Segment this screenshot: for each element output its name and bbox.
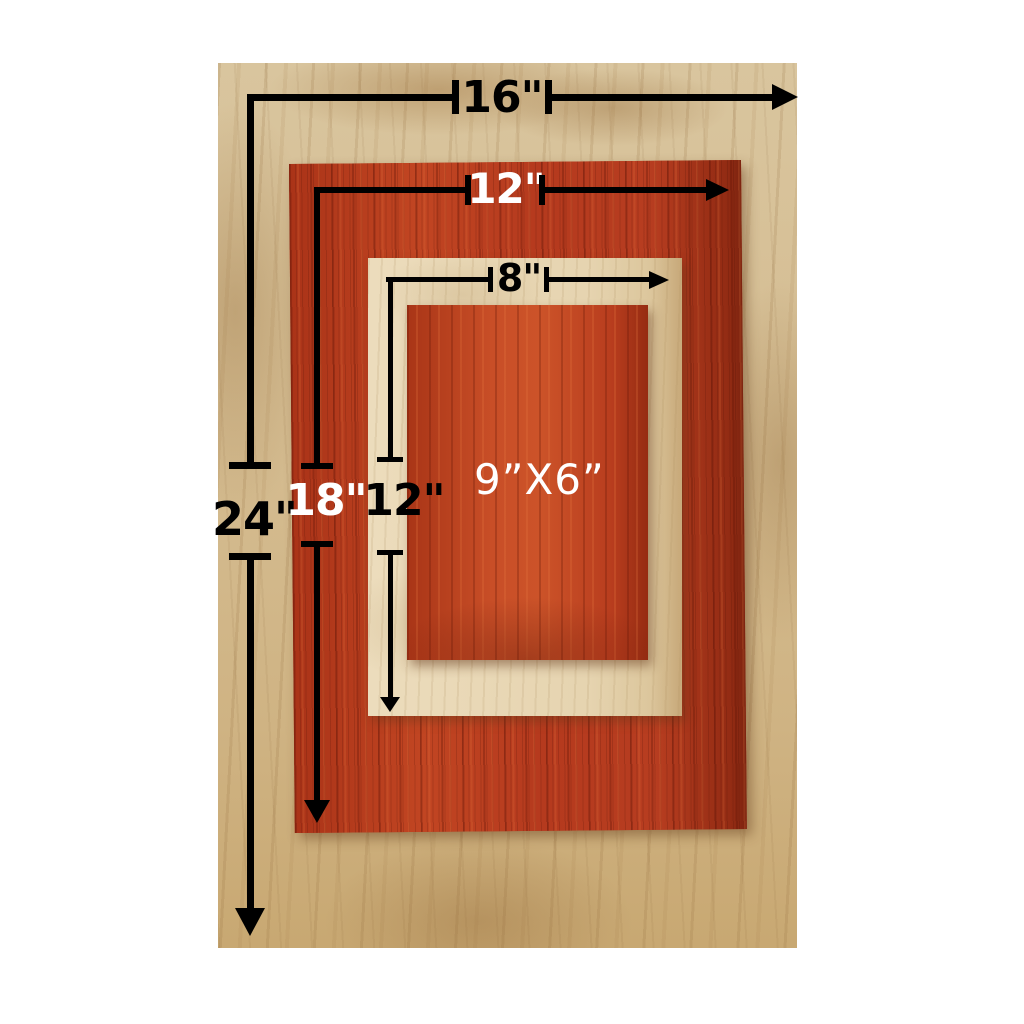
dim-width-8-arrowhead-icon <box>649 271 669 289</box>
dim-width-8-label: 8" <box>490 259 548 297</box>
dim-width-8-line-left <box>386 277 490 282</box>
dim-height-24-line-top <box>247 94 254 466</box>
dim-width-16-label: 16" <box>452 76 552 120</box>
dim-height-24-tick-bottom <box>229 553 271 560</box>
dim-height-18-line-top <box>314 187 320 466</box>
dim-width-16-line-left <box>247 94 453 101</box>
dim-width-16-arrowhead-icon <box>772 84 798 110</box>
dim-height-12-tick-top <box>377 457 403 462</box>
dim-width-12-line-left <box>314 187 468 193</box>
dim-height-24-line-bottom <box>247 560 254 908</box>
dim-width-8-line-right <box>549 277 650 282</box>
dim-height-18-line-bottom <box>314 547 320 800</box>
dim-width-16-line-right <box>552 94 773 101</box>
dim-width-16-tick-right <box>545 80 552 114</box>
dim-height-12-arrowhead-icon <box>380 697 400 712</box>
dim-height-24-tick-top <box>229 462 271 469</box>
dim-height-18-label: 18" <box>284 479 368 523</box>
inner-board-size-label: 9”X6” <box>474 459 605 501</box>
dim-height-12-label: 12" <box>362 479 446 523</box>
product-dimension-image: 16" 24" 12" 18" 8" 12" 9”X6” <box>0 0 1024 1024</box>
dim-width-12-line-right <box>545 187 707 193</box>
dim-height-12-line-bottom <box>388 555 393 697</box>
dim-width-12-arrowhead-icon <box>706 179 729 201</box>
dim-height-18-arrowhead-icon <box>304 800 330 823</box>
dim-height-12-line-top <box>388 277 393 459</box>
dim-height-18-tick-top <box>301 463 333 469</box>
dim-height-24-arrowhead-icon <box>235 908 265 936</box>
